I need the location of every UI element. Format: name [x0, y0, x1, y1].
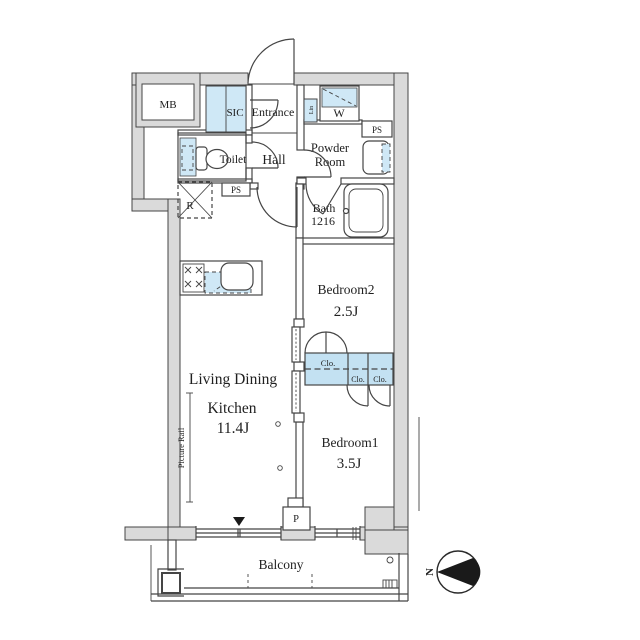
- balcony-grille: [383, 580, 397, 588]
- meter-box: MB: [136, 73, 200, 127]
- wall-top-right: [294, 73, 408, 85]
- washer-label: W: [333, 106, 345, 120]
- closet-door-arc-2: [369, 385, 390, 406]
- bath-label-2: 1216: [311, 214, 335, 228]
- partition-stub-2: [294, 362, 304, 371]
- room-bedroom2: Bedroom2 2.5J: [318, 282, 375, 320]
- bedroom2-size-label: 2.5J: [334, 304, 359, 320]
- partition-stub-3: [294, 413, 304, 422]
- compass-icon: N: [424, 551, 480, 593]
- wall-bath-bottom: [297, 238, 394, 244]
- balcony-joint-lines: [248, 574, 312, 588]
- balcony-grille-hatch: [386, 580, 392, 588]
- wall-hall-powder-a: [297, 85, 304, 150]
- bathtub-faucet-icon: [344, 209, 349, 214]
- room-toilet: Toilet: [178, 133, 247, 181]
- entrance-door-arc: [248, 39, 294, 83]
- floor-plan: MB SIC: [0, 0, 640, 640]
- balcony-access-marker: [233, 517, 245, 526]
- picture-rail-label: Picture Rail: [176, 427, 186, 468]
- window-ldk: [196, 526, 281, 540]
- wall-bottom-1: [168, 527, 196, 540]
- wall-toilet-right-a: [246, 135, 252, 143]
- hall-ldk-door-arc: [257, 187, 297, 227]
- sliding-door-panel-1: [292, 327, 300, 362]
- wall-bath-top-b: [341, 178, 394, 184]
- compass-north-label: N: [424, 568, 436, 576]
- partition-upper: [296, 238, 303, 319]
- mb-label: MB: [159, 99, 176, 111]
- toilet-tank-icon: [196, 147, 207, 170]
- room-bath: Bath 1216: [311, 184, 388, 237]
- toilet-label: Toilet: [220, 154, 247, 166]
- wall-bath-top-a: [297, 178, 306, 184]
- partition-ldk-bedrooms: [276, 184, 304, 527]
- partition-stub-1: [294, 319, 304, 327]
- balcony-drain-box: [162, 573, 180, 593]
- windows: P: [196, 498, 360, 540]
- ldk-label-2: Kitchen: [207, 400, 256, 417]
- closets: Clo. Clo. Clo.: [305, 332, 393, 406]
- column-block-upper: [365, 507, 394, 531]
- wall-neighbor-left: [125, 527, 168, 540]
- linen-label: Lin: [309, 106, 315, 114]
- balcony-label: Balcony: [259, 557, 304, 572]
- balcony-drain-circle: [387, 557, 393, 563]
- pillar-stub: [288, 498, 303, 507]
- refrigerator-label: R: [186, 200, 194, 212]
- kitchen-counter: [180, 261, 262, 295]
- door-handle-mark-1: [276, 422, 281, 427]
- room-ldk: Living Dining Kitchen 11.4J Picture Rail: [176, 371, 277, 502]
- room-powder: Lin W PS Powder Room: [304, 86, 392, 174]
- wall-right: [394, 73, 408, 554]
- door-handle-mark-2: [278, 466, 283, 471]
- wall-left-main: [168, 199, 180, 540]
- sic-label: SIC: [226, 107, 243, 119]
- closet-small1-label: Clo.: [351, 375, 365, 384]
- room-sic: SIC: [206, 86, 246, 132]
- floor-plan-page: MB SIC: [0, 0, 640, 640]
- ps-lower-label: PS: [231, 185, 241, 195]
- pillar-label: P: [293, 514, 299, 525]
- ldk-size-label: 11.4J: [217, 420, 250, 437]
- balcony-left-wall: [168, 540, 176, 570]
- powder-sink-counter: [382, 144, 390, 172]
- room-bedroom1: Bedroom1 3.5J: [322, 435, 379, 472]
- ps-upper-label: PS: [372, 125, 382, 135]
- closet-small2-label: Clo.: [373, 375, 387, 384]
- kitchen-sink-icon: [221, 263, 253, 290]
- bedroom1-size-label: 3.5J: [337, 456, 362, 472]
- closet-door-arc-1: [347, 385, 368, 406]
- washer-pan-icon: [322, 88, 357, 107]
- ldk-label-1: Living Dining: [189, 371, 278, 388]
- closet-main-label: Clo.: [321, 358, 335, 368]
- utility-nook: PS R: [178, 182, 250, 218]
- bedroom1-label: Bedroom1: [322, 435, 379, 450]
- column-block-lower: [365, 530, 408, 554]
- bedroom2-label: Bedroom2: [318, 282, 375, 297]
- powder-label-2: Room: [315, 155, 346, 169]
